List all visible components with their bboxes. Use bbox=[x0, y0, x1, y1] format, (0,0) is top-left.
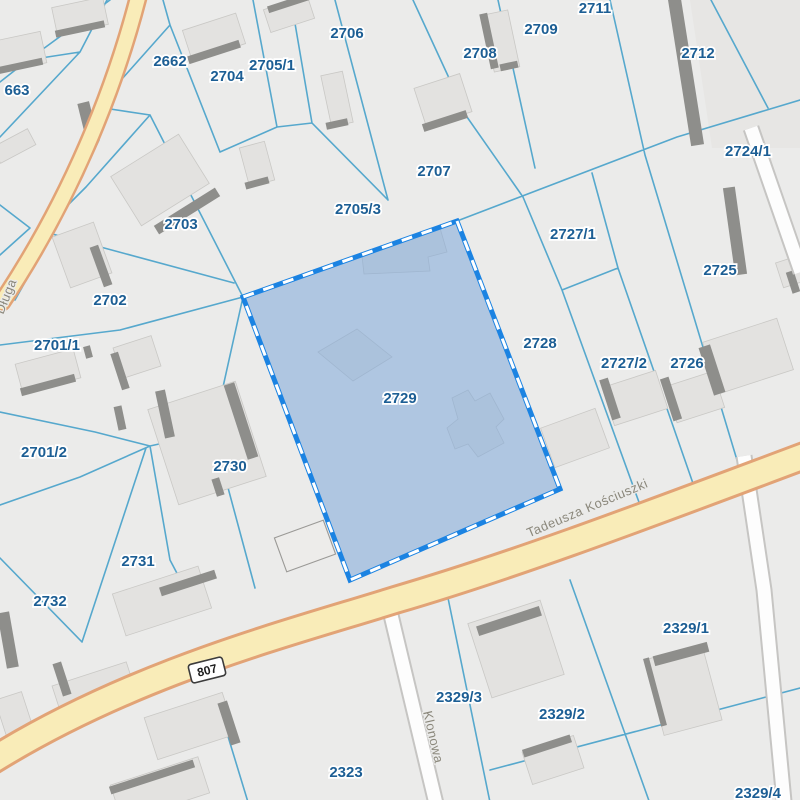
building bbox=[274, 520, 335, 572]
parcel-label-663: 663 bbox=[4, 82, 29, 99]
building-shadow bbox=[83, 345, 93, 358]
parcel-label-2329-3: 2329/3 bbox=[436, 689, 482, 706]
parcel-label-2707: 2707 bbox=[417, 163, 450, 180]
parcel-label-2732: 2732 bbox=[33, 593, 66, 610]
parcel-label-2705-3: 2705/3 bbox=[335, 201, 381, 218]
road-white-right bbox=[744, 456, 785, 800]
parcel-label-2323: 2323 bbox=[329, 764, 362, 781]
building-shadow bbox=[114, 405, 127, 430]
cadastral-map: DługaTadeusza KościuszkiKlonowa 807 2662… bbox=[0, 0, 800, 800]
parcel-label-2730: 2730 bbox=[213, 458, 246, 475]
parcel-label-2726: 2726 bbox=[670, 355, 703, 372]
parcel-label-2706: 2706 bbox=[330, 25, 363, 42]
parcel-label-2725: 2725 bbox=[703, 262, 736, 279]
building-shadow bbox=[0, 611, 19, 668]
parcel-label-2329-2: 2329/2 bbox=[539, 706, 585, 723]
parcel-label-2728: 2728 bbox=[523, 335, 556, 352]
parcel-label-2712: 2712 bbox=[681, 45, 714, 62]
parcel-label-2662: 2662 bbox=[153, 53, 186, 70]
parcel-label-2709: 2709 bbox=[524, 21, 557, 38]
parcel-label-2329-4: 2329/4 bbox=[735, 785, 782, 800]
building bbox=[0, 129, 36, 164]
parcel-label-2731: 2731 bbox=[121, 553, 154, 570]
parcel-label-2704: 2704 bbox=[210, 68, 244, 85]
parcel-label-2701-2: 2701/2 bbox=[21, 444, 67, 461]
building bbox=[321, 71, 353, 126]
parcel-label-2724-1: 2724/1 bbox=[725, 143, 771, 160]
parcel-label-2727-2: 2727/2 bbox=[601, 355, 647, 372]
parcel-label-2711: 2711 bbox=[579, 0, 612, 17]
parcel-label-2702: 2702 bbox=[93, 292, 126, 309]
parcel-label-2701-1: 2701/1 bbox=[34, 337, 80, 354]
map-canvas[interactable]: DługaTadeusza KościuszkiKlonowa 807 2662… bbox=[0, 0, 800, 800]
parcel-label-2705-1: 2705/1 bbox=[249, 57, 295, 74]
parcel-label-2703: 2703 bbox=[164, 216, 197, 233]
shaded-region bbox=[690, 0, 800, 148]
parcel-label-2708: 2708 bbox=[463, 45, 496, 62]
parcel-label-2729: 2729 bbox=[383, 390, 416, 407]
parcel-label-2329-1: 2329/1 bbox=[663, 620, 709, 637]
parcel-label-2727-1: 2727/1 bbox=[550, 226, 596, 243]
road-klonowa bbox=[386, 594, 438, 800]
